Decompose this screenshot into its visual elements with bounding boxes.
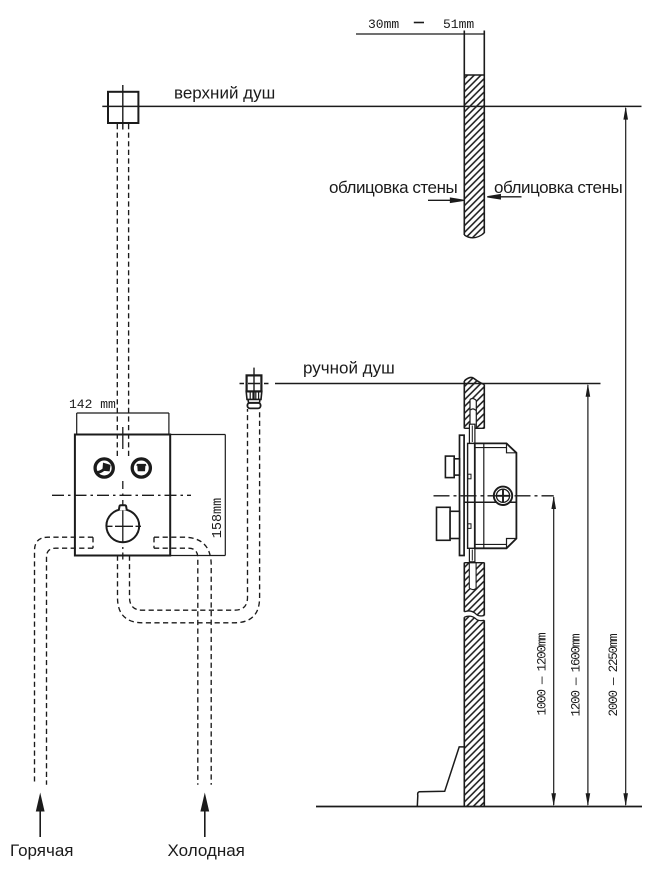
svg-text:облицовка стены: облицовка стены (329, 178, 458, 197)
svg-text:Горячая: Горячая (10, 841, 74, 860)
svg-text:облицовка стены: облицовка стены (494, 178, 623, 197)
svg-text:1000 — 1200mm: 1000 — 1200mm (536, 633, 550, 716)
svg-text:Холодная: Холодная (168, 841, 245, 860)
svg-text:1200 — 1600mm: 1200 — 1600mm (570, 634, 584, 717)
svg-text:30mm: 30mm (368, 17, 399, 32)
svg-text:51mm: 51mm (443, 17, 474, 32)
svg-text:142 mm: 142 mm (69, 397, 116, 412)
svg-text:ручной душ: ручной душ (303, 358, 395, 377)
svg-text:2000 — 2250mm: 2000 — 2250mm (607, 634, 621, 717)
svg-text:158mm: 158mm (211, 498, 226, 539)
svg-text:верхний душ: верхний душ (174, 84, 275, 103)
